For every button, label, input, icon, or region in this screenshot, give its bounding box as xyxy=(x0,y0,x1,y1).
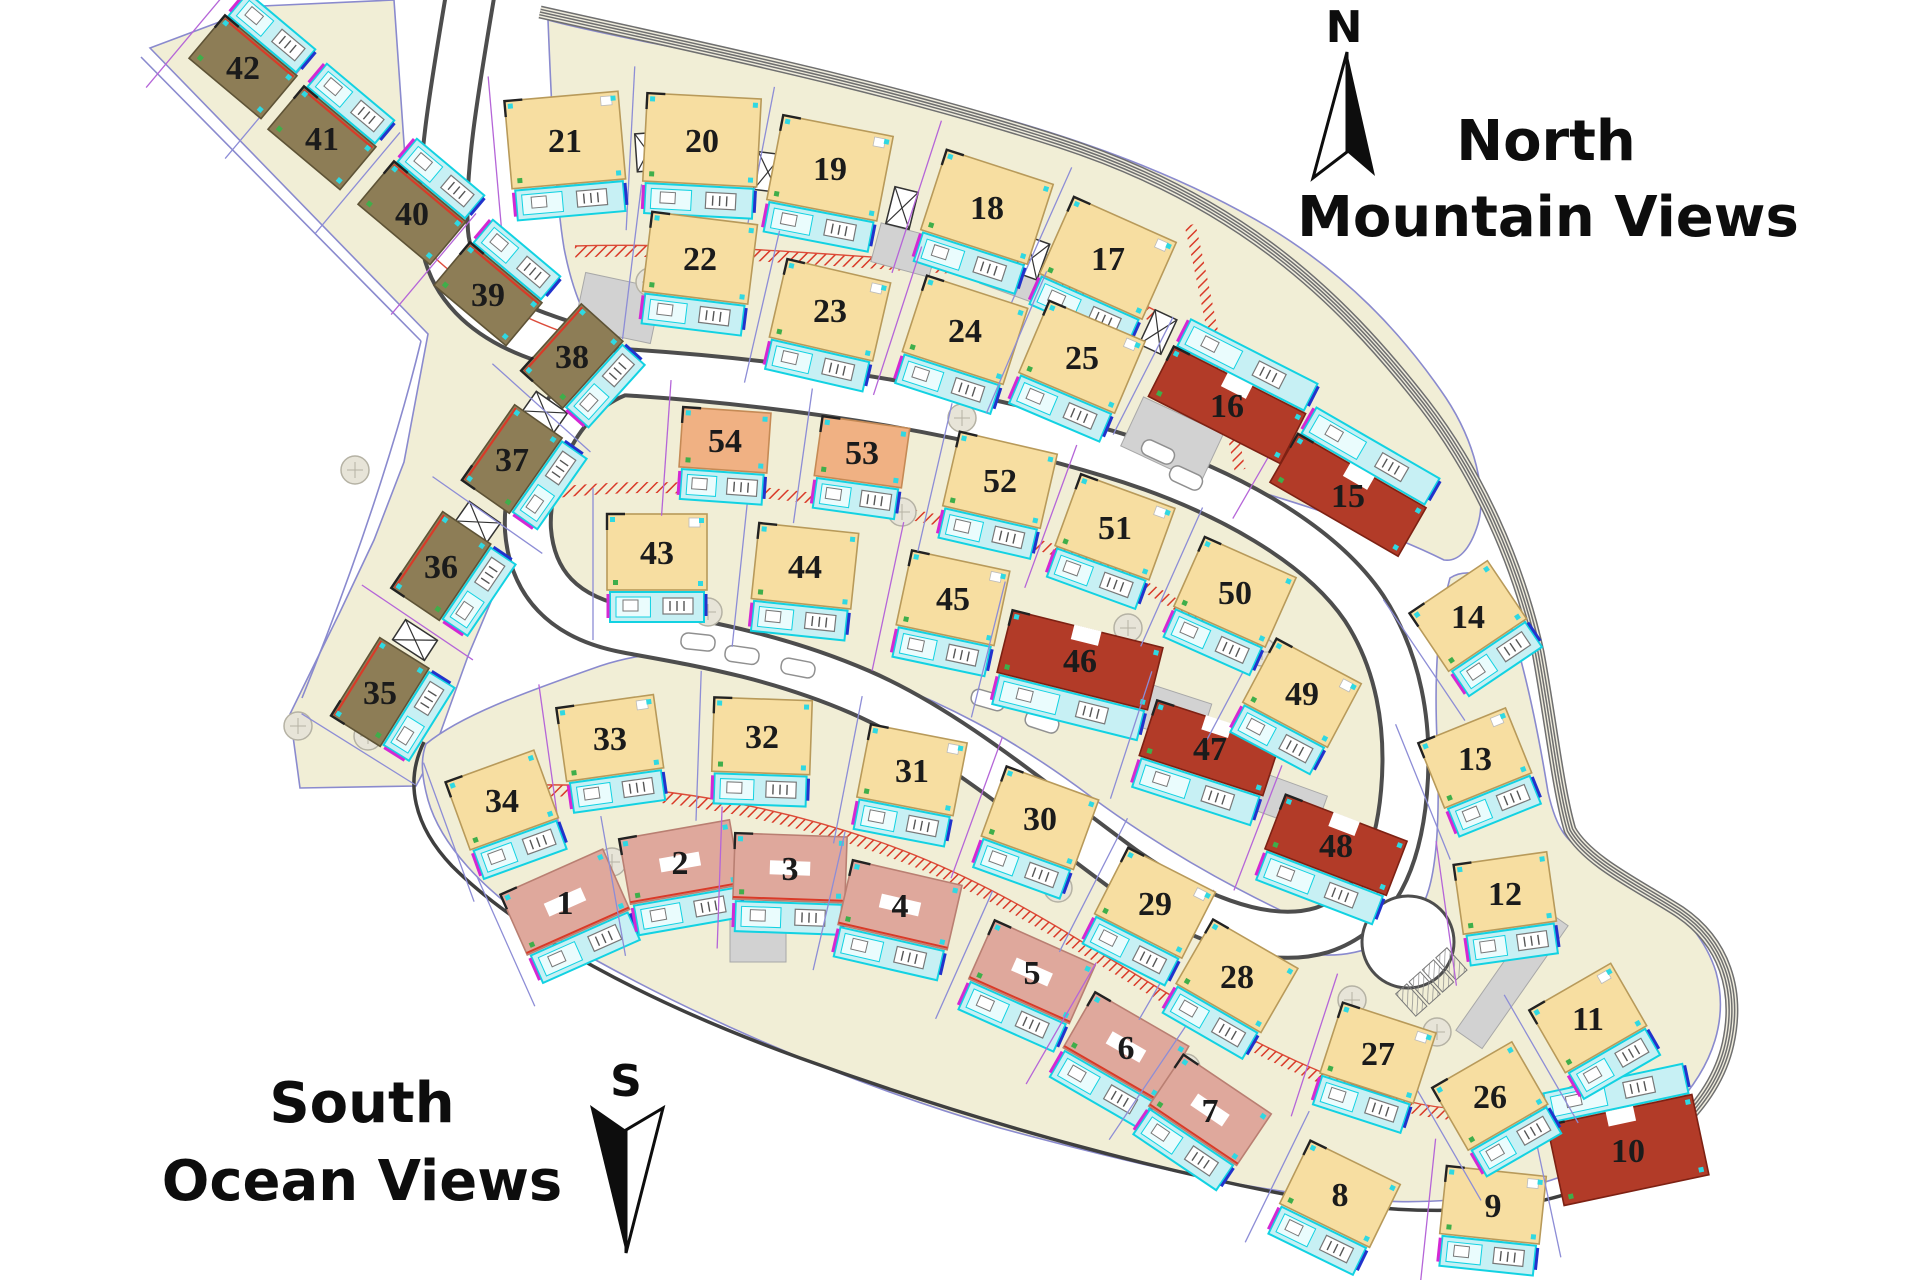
lot-45-number: 45 xyxy=(936,581,970,618)
garage-box-icon xyxy=(860,490,892,510)
lot-49-number: 49 xyxy=(1285,676,1319,713)
lot-15-number: 15 xyxy=(1331,478,1365,515)
lot-22-number: 22 xyxy=(683,241,717,278)
lot-24-number: 24 xyxy=(948,313,982,350)
lot-53-number: 53 xyxy=(845,435,879,472)
lot-23-number: 23 xyxy=(813,293,847,330)
garage-box-icon xyxy=(1493,1247,1525,1266)
lot-33-number: 33 xyxy=(593,721,627,758)
parking-space-icon xyxy=(680,632,715,651)
compass-south-icon: S xyxy=(590,1056,663,1253)
lot-1-number: 1 xyxy=(557,885,574,922)
lot-25-number: 25 xyxy=(1065,340,1099,377)
lot-12-number: 12 xyxy=(1488,876,1522,913)
garage-box-icon xyxy=(576,189,607,208)
lot-18-number: 18 xyxy=(970,190,1004,227)
lot-50-number: 50 xyxy=(1218,575,1252,612)
compass-south-letter: S xyxy=(610,1056,642,1107)
lot-43-number: 43 xyxy=(640,535,674,572)
lot-44-number: 44 xyxy=(788,549,822,586)
tree-circle-icon xyxy=(284,712,312,740)
lot-17-number: 17 xyxy=(1091,241,1125,278)
lot-11-number: 11 xyxy=(1572,1001,1604,1038)
label-south-line1: South xyxy=(269,1071,454,1136)
lot-46-number: 46 xyxy=(1063,643,1097,680)
lot-54-number: 54 xyxy=(708,423,742,460)
lot-16-number: 16 xyxy=(1210,388,1244,425)
lot-40-number: 40 xyxy=(395,196,429,233)
lot-2-number: 2 xyxy=(672,845,689,882)
lot-39-number: 39 xyxy=(471,277,505,314)
lot-38-number: 38 xyxy=(555,339,589,376)
lot-20-number: 20 xyxy=(685,123,719,160)
garage-box-icon xyxy=(795,909,826,926)
lot-30-number: 30 xyxy=(1023,801,1057,838)
lot-34-number: 34 xyxy=(485,783,519,820)
lot-27-number: 27 xyxy=(1361,1036,1395,1073)
site-plan: 1234567891011121314151617181920212223242… xyxy=(0,0,1920,1280)
tree-circle-icon xyxy=(341,456,369,484)
lot-42-number: 42 xyxy=(226,50,260,87)
lot-26-number: 26 xyxy=(1473,1079,1507,1116)
lot-32-number: 32 xyxy=(745,719,779,756)
lot-19-number: 19 xyxy=(813,151,847,188)
lot-37-number: 37 xyxy=(495,442,529,479)
lot-51-number: 51 xyxy=(1098,510,1132,547)
lot-48-number: 48 xyxy=(1319,828,1353,865)
lot-36-number: 36 xyxy=(424,549,458,586)
lot-3-number: 3 xyxy=(782,851,799,888)
lot-9-number: 9 xyxy=(1485,1188,1502,1225)
label-north-line2: Mountain Views xyxy=(1297,185,1799,250)
garage-box-icon xyxy=(622,778,654,798)
garage-box-icon xyxy=(766,781,797,798)
garage-box-icon xyxy=(699,306,731,326)
lot-21-number: 21 xyxy=(548,123,582,160)
lot-10-number: 10 xyxy=(1611,1133,1645,1170)
lot-5-number: 5 xyxy=(1024,955,1041,992)
lot-6-number: 6 xyxy=(1118,1030,1135,1067)
garage-box-icon xyxy=(727,478,758,496)
compass-north-letter: N xyxy=(1326,2,1363,53)
garage-box-icon xyxy=(804,612,836,631)
garage-box-icon xyxy=(1517,931,1549,951)
lot-31-number: 31 xyxy=(895,753,929,790)
lot-13-number: 13 xyxy=(1458,741,1492,778)
label-north-line1: North xyxy=(1456,109,1636,174)
lot-8-number: 8 xyxy=(1332,1177,1349,1214)
label-south-line2: Ocean Views xyxy=(162,1149,563,1214)
lot-47-number: 47 xyxy=(1193,731,1227,768)
lot-14-number: 14 xyxy=(1451,599,1485,636)
lot-4-number: 4 xyxy=(892,888,909,925)
garage-box-icon xyxy=(705,192,736,210)
lot-28-number: 28 xyxy=(1220,959,1254,996)
garage-box-icon xyxy=(663,598,693,614)
lot-7-number: 7 xyxy=(1202,1093,1219,1130)
lot-41-number: 41 xyxy=(305,121,339,158)
lot-35-number: 35 xyxy=(363,675,397,712)
lot-29-number: 29 xyxy=(1138,886,1172,923)
compass-north-icon: N xyxy=(1313,2,1375,178)
lot-52-number: 52 xyxy=(983,463,1017,500)
